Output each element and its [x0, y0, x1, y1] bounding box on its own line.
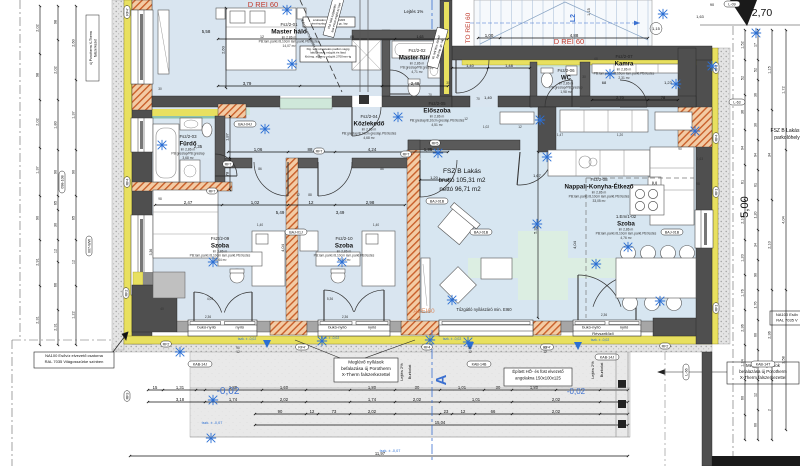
svg-text:2,36: 2,36	[768, 331, 772, 338]
svg-text:nyíló: nyíló	[236, 325, 245, 330]
svg-text:Fsz/2-02: Fsz/2-02	[408, 48, 426, 53]
svg-text:Burkolat: Burkolat	[407, 364, 412, 380]
svg-text:Fsz/2-10: Fsz/2-10	[335, 236, 353, 241]
svg-text:60: 60	[754, 423, 758, 427]
svg-text:12: 12	[464, 117, 468, 121]
svg-text:Szoba: Szoba	[211, 243, 230, 250]
svg-text:36: 36	[754, 93, 758, 97]
svg-text:TO REI 60: TO REI 60	[465, 12, 472, 43]
svg-text:2,02: 2,02	[413, 397, 422, 402]
svg-text:RF2: RF2	[662, 345, 669, 349]
svg-text:Burkolat: Burkolat	[599, 362, 604, 378]
svg-text:4,68 m²: 4,68 m²	[363, 136, 375, 140]
svg-text:1,31: 1,31	[176, 385, 185, 390]
svg-text:12: 12	[754, 393, 758, 397]
svg-text:14,07 m²: 14,07 m²	[282, 44, 296, 48]
svg-text:Lejtés 1%: Lejtés 1%	[404, 9, 423, 14]
svg-text:30: 30	[754, 123, 758, 127]
svg-text:68: 68	[602, 80, 607, 85]
svg-text:34: 34	[768, 153, 772, 157]
svg-text:4,24: 4,24	[368, 147, 377, 152]
svg-text:L2: L2	[570, 14, 577, 22]
svg-text:2,02: 2,02	[36, 24, 40, 31]
svg-text:1,67: 1,67	[533, 173, 542, 178]
svg-text:BAJ-04J: BAJ-04J	[238, 123, 252, 127]
svg-text:RF2: RF2	[163, 343, 170, 347]
svg-text:Fsz/2-07: Fsz/2-07	[615, 54, 633, 59]
svg-text:2,02: 2,02	[368, 409, 377, 414]
svg-text:2,70: 2,70	[616, 95, 625, 100]
svg-text:Fsz/2-01: Fsz/2-01	[280, 22, 298, 27]
svg-text:Épített HŐ- és füst elvezető: Épített HŐ- és füst elvezető	[512, 369, 564, 374]
svg-text:2,10: 2,10	[768, 241, 772, 248]
svg-text:12: 12	[236, 350, 240, 354]
svg-text:5,36: 5,36	[327, 297, 333, 301]
svg-text:Fsz/2-03: Fsz/2-03	[179, 134, 197, 139]
svg-text:1,40: 1,40	[466, 63, 475, 68]
svg-text:1,00: 1,00	[485, 33, 494, 38]
svg-text:BAJ-01B: BAJ-01B	[474, 231, 489, 235]
svg-text:3,18: 3,18	[176, 397, 185, 402]
svg-text:FSZ B Lakás: FSZ B Lakás	[771, 128, 800, 134]
svg-text:Közlekedő: Közlekedő	[354, 121, 385, 128]
svg-text:A: A	[433, 374, 450, 385]
svg-text:1,74: 1,74	[229, 397, 238, 402]
svg-text:1,60: 1,60	[280, 385, 289, 390]
svg-text:1,63: 1,63	[696, 15, 703, 19]
svg-text:KAB-14J: KAB-14J	[600, 356, 614, 360]
svg-text:12: 12	[310, 409, 315, 414]
svg-text:RF4: RF4	[424, 346, 431, 350]
svg-text:86: 86	[258, 167, 262, 171]
svg-text:-0,02: -0,02	[567, 387, 586, 396]
svg-text:12: 12	[72, 260, 76, 264]
svg-text:12: 12	[296, 193, 300, 197]
svg-text:RF7: RF7	[225, 163, 232, 167]
svg-text:tszk. ± -0,02: tszk. ± -0,02	[238, 337, 257, 341]
svg-text:40: 40	[160, 307, 164, 311]
svg-text:3,58: 3,58	[782, 356, 786, 363]
svg-text:1,20: 1,20	[430, 175, 439, 180]
svg-text:52: 52	[741, 76, 745, 80]
svg-text:1,01: 1,01	[472, 397, 481, 402]
svg-text:X-Therm falszerkezettel: X-Therm falszerkezettel	[342, 372, 391, 377]
svg-text:4,76 m²: 4,76 m²	[620, 236, 632, 240]
svg-text:1,20: 1,20	[754, 212, 758, 219]
svg-text:2,36: 2,36	[342, 315, 348, 319]
svg-text:1,76: 1,76	[754, 302, 758, 309]
svg-text:1,06: 1,06	[254, 147, 263, 152]
svg-text:RF4: RF4	[126, 179, 130, 186]
svg-text:befalazása új Porotherm: befalazása új Porotherm	[739, 369, 787, 374]
svg-text:RF7: RF7	[403, 153, 410, 157]
svg-text:KAB-14T: KAB-14T	[756, 363, 771, 367]
svg-text:1,76: 1,76	[741, 289, 745, 296]
svg-text:4,88: 4,88	[570, 33, 579, 38]
svg-text:98: 98	[158, 197, 162, 201]
svg-text:90: 90	[72, 170, 76, 174]
svg-text:RAL 7035 V: RAL 7035 V	[776, 317, 798, 322]
svg-text:17: 17	[754, 43, 758, 47]
svg-text:30: 30	[582, 75, 586, 79]
svg-text:2,02: 2,02	[36, 118, 40, 125]
svg-text:1,01: 1,01	[458, 385, 467, 390]
svg-text:bukó-nyíló: bukó-nyíló	[197, 325, 216, 330]
svg-text:4,51 m²: 4,51 m²	[431, 123, 443, 127]
svg-text:D REI 60: D REI 60	[554, 37, 584, 46]
svg-text:12: 12	[309, 200, 314, 205]
svg-text:RF5: RF5	[432, 142, 439, 146]
svg-text:bruttó 105,31 m2: bruttó 105,31 m2	[439, 177, 486, 184]
svg-text:12: 12	[468, 350, 472, 354]
svg-text:78: 78	[661, 95, 666, 100]
svg-text:2,36: 2,36	[601, 313, 607, 317]
svg-text:3,49: 3,49	[336, 210, 345, 215]
svg-text:bukó-nyíló: bukó-nyíló	[328, 325, 347, 330]
svg-text:86: 86	[380, 167, 384, 171]
svg-text:90: 90	[710, 3, 714, 7]
svg-text:Nappali-Konyha-Étkező: Nappali-Konyha-Étkező	[564, 183, 633, 191]
svg-text:4,04: 4,04	[572, 240, 577, 249]
svg-text:2,35: 2,35	[194, 144, 203, 149]
svg-text:1,02: 1,02	[251, 200, 260, 205]
svg-text:1,74: 1,74	[368, 397, 377, 402]
svg-text:RAL 7035 Világosszürke színben: RAL 7035 Világosszürke színben	[45, 359, 104, 364]
svg-text:30: 30	[54, 223, 58, 227]
svg-text:L-66: L-66	[685, 368, 689, 375]
svg-text:34: 34	[754, 243, 758, 247]
svg-text:1,15: 1,15	[652, 26, 661, 31]
svg-text:70: 70	[476, 97, 480, 101]
svg-text:1,48: 1,48	[505, 63, 514, 68]
svg-text:Fsz/2-08: Fsz/2-08	[590, 177, 608, 182]
svg-text:tszk. ± -0,02: tszk. ± -0,02	[443, 337, 462, 341]
svg-text:5,49: 5,49	[276, 210, 285, 215]
svg-text:1.Em/1-02: 1.Em/1-02	[616, 214, 637, 219]
svg-text:1,15: 1,15	[768, 66, 772, 73]
svg-text:1,98 m²: 1,98 m²	[560, 90, 572, 94]
svg-text:4,04: 4,04	[207, 297, 213, 301]
svg-text:főútmg. zuhany mögött 2700mm-i: főútmg. zuhany mögött 2700mm-ig	[305, 54, 352, 58]
svg-text:2,60: 2,60	[72, 39, 76, 46]
svg-text:Fsz/2-05: Fsz/2-05	[428, 101, 446, 106]
svg-text:86: 86	[350, 35, 354, 39]
svg-text:NA100 Esőv: NA100 Esőv	[776, 312, 798, 317]
svg-text:Meglévő nyílások: Meglévő nyílások	[348, 359, 384, 364]
svg-text:94: 94	[754, 153, 758, 157]
svg-text:Fsz/2-06: Fsz/2-06	[557, 68, 575, 73]
svg-text:NA100 Esővíz elvezető csatorna: NA100 Esővíz elvezető csatorna	[45, 353, 104, 358]
svg-text:KAB-14J: KAB-14J	[193, 363, 207, 367]
svg-text:23: 23	[444, 409, 449, 414]
svg-text:12: 12	[54, 249, 58, 253]
svg-text:bukó-nyíló: bukó-nyíló	[582, 325, 601, 330]
svg-text:1,22: 1,22	[72, 311, 76, 318]
svg-text:66: 66	[54, 283, 58, 287]
svg-text:33,05 m²: 33,05 m²	[592, 199, 606, 203]
svg-text:tszk. ± -0,07: tszk. ± -0,07	[380, 449, 401, 453]
svg-text:2,02: 2,02	[552, 409, 561, 414]
svg-text:1,80: 1,80	[530, 385, 539, 390]
svg-text:falszerkezet: falszerkezet	[94, 39, 98, 57]
svg-text:FSZ B Lakás: FSZ B Lakás	[443, 168, 482, 175]
svg-text:L-09: L-09	[728, 3, 735, 7]
svg-text:parkolóhely: parkolóhely	[774, 135, 800, 141]
svg-text:1,63: 1,63	[417, 35, 424, 39]
svg-text:1,52: 1,52	[741, 41, 745, 48]
svg-text:nyíló: nyíló	[368, 325, 377, 330]
svg-text:nyíló: nyíló	[620, 325, 629, 330]
svg-text:90: 90	[36, 216, 40, 220]
svg-text:2: 2	[768, 409, 772, 411]
svg-text:RF7: RF7	[316, 150, 323, 154]
svg-text:15: 15	[153, 385, 158, 390]
svg-text:RF4: RF4	[715, 135, 719, 142]
svg-text:új Porotherm X-Therm: új Porotherm X-Therm	[89, 31, 93, 65]
svg-text:RF4': RF4'	[298, 346, 306, 350]
svg-text:RF1: RF1	[715, 305, 719, 312]
svg-text:4,04: 4,04	[782, 216, 786, 223]
svg-text:1,87: 1,87	[225, 132, 230, 141]
svg-text:2,02: 2,02	[280, 397, 289, 402]
svg-text:nettó 96,71 m2: nettó 96,71 m2	[439, 186, 481, 193]
svg-text:60: 60	[741, 396, 745, 400]
svg-text:2,47: 2,47	[184, 200, 193, 205]
svg-text:-0,02: -0,02	[217, 386, 240, 397]
svg-text:68: 68	[594, 57, 598, 61]
svg-text:30: 30	[496, 385, 501, 390]
svg-text:Előszoba: Előszoba	[423, 108, 451, 115]
svg-text:30: 30	[415, 385, 420, 390]
svg-text:66: 66	[491, 409, 496, 414]
svg-text:L-63: L-63	[733, 101, 740, 105]
svg-text:1,40: 1,40	[257, 223, 263, 227]
svg-text:1,35: 1,35	[424, 147, 433, 152]
svg-text:5,00: 5,00	[739, 196, 751, 217]
svg-text:88: 88	[308, 147, 313, 152]
svg-text:94: 94	[741, 146, 745, 150]
svg-text:60: 60	[754, 333, 758, 337]
svg-text:90: 90	[754, 273, 758, 277]
svg-text:65: 65	[54, 201, 58, 205]
svg-text:Szoba: Szoba	[335, 243, 354, 250]
svg-text:90: 90	[678, 147, 682, 151]
svg-text:007-WW: 007-WW	[88, 238, 92, 253]
svg-text:12: 12	[260, 35, 264, 39]
svg-text:2,02: 2,02	[552, 397, 561, 402]
svg-text:Lejtés 2%: Lejtés 2%	[399, 363, 404, 381]
svg-text:12: 12	[518, 125, 522, 129]
svg-text:1,80: 1,80	[54, 121, 58, 128]
svg-text:A2EI60: A2EI60	[413, 308, 435, 315]
svg-text:4,04: 4,04	[280, 243, 285, 252]
svg-text:tszk. ± -0,02: tszk. ± -0,02	[591, 338, 610, 342]
svg-text:36: 36	[741, 110, 745, 114]
svg-text:RF2: RF2	[125, 290, 129, 297]
svg-text:BAJ-01B: BAJ-01B	[665, 231, 680, 235]
svg-text:Révszellőző: Révszellőző	[592, 331, 614, 336]
svg-text:88: 88	[308, 193, 312, 197]
svg-text:2,60: 2,60	[221, 45, 226, 54]
svg-text:5,58: 5,58	[202, 29, 211, 34]
svg-text:1,47: 1,47	[557, 133, 563, 137]
svg-text:73: 73	[332, 409, 337, 414]
svg-text:98: 98	[36, 73, 40, 77]
svg-text:1,02: 1,02	[483, 125, 489, 129]
svg-text:2,02: 2,02	[54, 66, 58, 73]
svg-text:2,31: 2,31	[54, 323, 58, 330]
svg-text:2,70: 2,70	[752, 7, 773, 19]
svg-text:1,63: 1,63	[697, 157, 703, 161]
svg-text:1,72: 1,72	[782, 86, 786, 93]
svg-text:2,31: 2,31	[36, 316, 40, 323]
svg-text:RF4': RF4'	[126, 8, 130, 16]
svg-text:12: 12	[543, 350, 547, 354]
svg-text:90: 90	[278, 409, 283, 414]
svg-text:2,91: 2,91	[36, 258, 40, 265]
svg-text:30: 30	[158, 87, 162, 91]
svg-text:befalazása új Porotherm: befalazása új Porotherm	[341, 366, 391, 371]
svg-text:X-Therm falszerkezettel: X-Therm falszerkezettel	[740, 375, 786, 380]
svg-text:3,36: 3,36	[149, 249, 153, 256]
svg-text:Tűzgátló nyílászáró min. EI60: Tűzgátló nyílászáró min. EI60	[456, 307, 512, 312]
svg-text:61: 61	[741, 180, 745, 184]
svg-text:angolakna 150x100x125: angolakna 150x100x125	[515, 375, 561, 380]
svg-text:098-108: 098-108	[61, 175, 65, 188]
svg-text:RF1: RF1	[715, 189, 719, 196]
svg-text:2,31 m²: 2,31 m²	[618, 76, 630, 80]
svg-text:61: 61	[754, 183, 758, 187]
svg-text:tszk. ± -0,07: tszk. ± -0,07	[202, 421, 223, 425]
svg-text:52: 52	[754, 68, 758, 72]
svg-text:Master háló: Master háló	[271, 29, 307, 36]
svg-text:1,80: 1,80	[368, 385, 377, 390]
svg-text:1,37: 1,37	[36, 166, 40, 173]
svg-text:D REI 60: D REI 60	[248, 0, 278, 9]
svg-text:3,68 m²: 3,68 m²	[182, 156, 194, 160]
svg-text:KAB-14B: KAB-14B	[472, 363, 487, 367]
svg-text:1,15: 1,15	[587, 8, 591, 15]
svg-text:78: 78	[225, 171, 230, 176]
svg-text:Fszt/2-09: Fszt/2-09	[211, 236, 230, 241]
svg-text:RF7: RF7	[209, 190, 216, 194]
svg-text:1,24: 1,24	[741, 359, 745, 366]
svg-text:4,71 m²: 4,71 m²	[411, 70, 423, 74]
svg-text:12: 12	[461, 409, 466, 414]
svg-text:2,98: 2,98	[366, 200, 375, 205]
svg-text:BAJ-01J: BAJ-01J	[289, 231, 303, 235]
svg-text:1,20: 1,20	[741, 254, 745, 261]
svg-text:1,37: 1,37	[72, 111, 76, 118]
svg-text:98: 98	[696, 182, 700, 186]
svg-text:1,40: 1,40	[484, 95, 493, 100]
svg-text:2,36: 2,36	[205, 315, 211, 319]
svg-text:65: 65	[72, 216, 76, 220]
svg-text:70: 70	[428, 93, 432, 97]
svg-text:BAJ-01B: BAJ-01B	[430, 200, 445, 204]
svg-text:RF3: RF3	[126, 393, 130, 400]
svg-text:2,49: 2,49	[411, 81, 420, 86]
svg-text:Lejtés 2%: Lejtés 2%	[590, 361, 595, 379]
svg-text:2,36: 2,36	[741, 324, 745, 331]
svg-text:30: 30	[446, 81, 450, 85]
svg-text:90: 90	[54, 170, 58, 174]
svg-text:3,79: 3,79	[243, 81, 252, 86]
svg-text:98: 98	[54, 20, 58, 24]
svg-text:Fsz/2-04: Fsz/2-04	[360, 114, 378, 119]
svg-text:1,40: 1,40	[373, 223, 379, 227]
svg-text:15,04: 15,04	[435, 420, 446, 425]
svg-text:1,20: 1,20	[617, 133, 623, 137]
